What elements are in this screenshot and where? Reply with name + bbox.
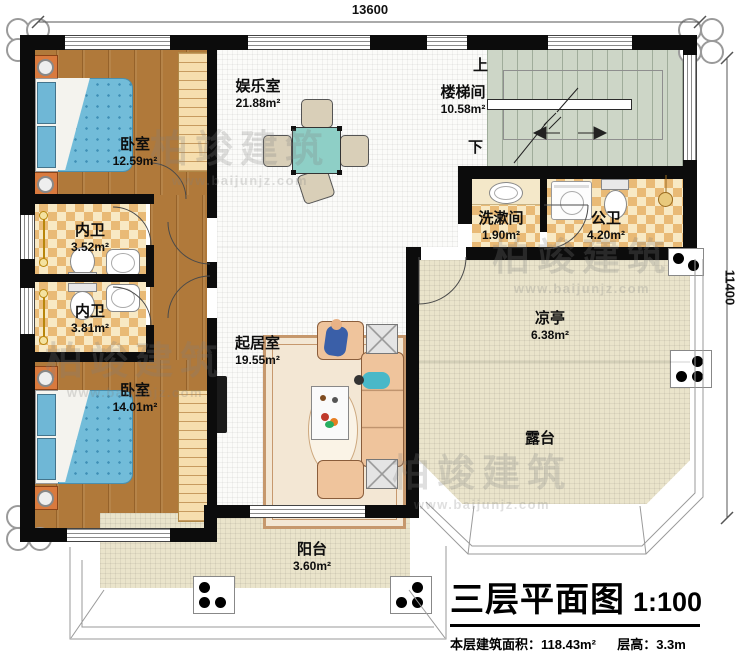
stairs-up-label: 上 bbox=[473, 54, 488, 75]
nightstand bbox=[33, 486, 58, 510]
wardrobe bbox=[178, 390, 209, 522]
person-figure bbox=[362, 372, 390, 389]
plan-scale: 1:100 bbox=[633, 587, 702, 617]
towel-rail bbox=[43, 294, 45, 338]
lamp-icon bbox=[37, 176, 54, 193]
room-label-public-bath: 公卫 4.20m² bbox=[574, 210, 638, 242]
room-area: 10.58m² bbox=[427, 102, 499, 116]
room-name: 卧室 bbox=[95, 136, 175, 154]
window bbox=[67, 528, 170, 542]
nightstand bbox=[33, 172, 58, 196]
room-name: 卧室 bbox=[95, 382, 175, 400]
column-marker bbox=[193, 576, 235, 614]
room-area: 3.52m² bbox=[60, 240, 120, 254]
bed-pillow bbox=[37, 82, 56, 124]
column-dot bbox=[692, 356, 703, 367]
table-corner bbox=[291, 126, 296, 131]
cup-decor bbox=[332, 397, 338, 403]
window bbox=[548, 35, 632, 50]
plan-title-row: 三层平面图1:100 bbox=[450, 572, 700, 621]
room-label-pavilion: 凉亭 6.38m² bbox=[515, 310, 585, 342]
room-name: 楼梯间 bbox=[427, 84, 499, 102]
sink-icon bbox=[489, 182, 523, 204]
towel-rail-end bbox=[39, 211, 48, 220]
plan-info: 本层建筑面积：118.43m² 层高：3.3m bbox=[450, 634, 700, 653]
bed-pillow bbox=[37, 126, 56, 168]
game-table bbox=[292, 127, 341, 174]
title-underline bbox=[450, 624, 700, 627]
wall bbox=[20, 352, 154, 362]
wall bbox=[207, 262, 217, 288]
bed-pillow bbox=[37, 394, 56, 436]
window bbox=[20, 288, 35, 334]
room-name: 阳台 bbox=[277, 541, 347, 559]
room-label-bedroom-bottom: 卧室 14.01m² bbox=[95, 382, 175, 414]
towel-rail-end bbox=[39, 258, 48, 267]
column-dot bbox=[199, 582, 210, 593]
room-area: 3.81m² bbox=[60, 321, 120, 335]
area-label: 本层建筑面积： bbox=[450, 637, 541, 652]
room-label-stairwell: 楼梯间 10.58m² bbox=[427, 84, 499, 116]
room-area: 6.38m² bbox=[515, 328, 585, 342]
room-label-living: 起居室 19.55m² bbox=[215, 335, 300, 367]
room-name: 内卫 bbox=[60, 303, 120, 321]
room-name: 公卫 bbox=[574, 210, 638, 228]
column-marker bbox=[670, 350, 712, 388]
leaf-decor bbox=[325, 421, 334, 428]
wall bbox=[20, 274, 154, 282]
room-label-bath-inner-1: 内卫 3.52m² bbox=[60, 222, 120, 254]
corridor-floor bbox=[150, 195, 207, 360]
doorway bbox=[421, 247, 466, 260]
window bbox=[427, 35, 467, 50]
wall bbox=[458, 166, 697, 179]
room-name: 内卫 bbox=[60, 222, 120, 240]
coffee-table bbox=[311, 386, 349, 440]
wall bbox=[20, 194, 154, 204]
room-area: 14.01m² bbox=[95, 400, 175, 414]
height-label: 层高： bbox=[617, 637, 656, 652]
toilet-tank bbox=[601, 179, 629, 190]
room-area: 1.90m² bbox=[465, 228, 537, 242]
column-dot bbox=[688, 260, 699, 271]
room-name: 娱乐室 bbox=[218, 78, 298, 96]
room-label-bath-inner-2: 内卫 3.81m² bbox=[60, 303, 120, 335]
plan-title: 三层平面图 bbox=[450, 581, 625, 619]
sink-basin bbox=[494, 186, 518, 200]
towel-rail-end bbox=[39, 336, 48, 345]
room-name: 露台 bbox=[505, 430, 575, 448]
room-area: 19.55m² bbox=[215, 353, 300, 367]
column-dot bbox=[412, 582, 423, 593]
lamp-icon bbox=[37, 490, 54, 507]
table-corner bbox=[337, 126, 342, 131]
wardrobe bbox=[178, 52, 209, 172]
bed-sheet bbox=[58, 78, 94, 170]
area-value: 118.43m² bbox=[541, 637, 596, 652]
hall-floor bbox=[217, 166, 458, 247]
table-corner bbox=[291, 170, 296, 175]
column-dot bbox=[199, 597, 210, 608]
person-head bbox=[354, 375, 364, 385]
wall bbox=[406, 260, 419, 518]
towel-rail bbox=[43, 216, 45, 260]
round-column bbox=[700, 40, 724, 64]
column-marker bbox=[668, 248, 704, 276]
column-dot bbox=[215, 597, 226, 608]
room-label-bedroom-top: 卧室 12.59m² bbox=[95, 136, 175, 168]
bed-pillow bbox=[37, 438, 56, 480]
nightstand bbox=[33, 55, 58, 79]
dimension-top: 13600 bbox=[330, 2, 410, 17]
person-head bbox=[331, 319, 342, 330]
room-name: 起居室 bbox=[215, 335, 300, 353]
sink-basin bbox=[111, 253, 135, 273]
room-name: 凉亭 bbox=[515, 310, 585, 328]
title-block: 三层平面图1:100 本层建筑面积：118.43m² 层高：3.3m bbox=[450, 572, 700, 653]
column-dot bbox=[673, 253, 684, 264]
wall bbox=[146, 245, 154, 287]
wall bbox=[207, 49, 217, 218]
room-label-balcony: 阳台 3.60m² bbox=[277, 541, 347, 573]
cup-decor bbox=[320, 395, 326, 401]
side-table bbox=[366, 459, 398, 489]
height-value: 3.3m bbox=[656, 637, 686, 652]
lamp-icon bbox=[37, 59, 54, 76]
table-corner bbox=[337, 170, 342, 175]
floor-plan-canvas: 卧室 12.59m² 娱乐室 21.88m² 楼梯间 10.58m² 内卫 3.… bbox=[0, 0, 750, 658]
room-label-entertainment: 娱乐室 21.88m² bbox=[218, 78, 298, 110]
room-area: 4.20m² bbox=[574, 228, 638, 242]
column-dot bbox=[396, 597, 407, 608]
chair bbox=[263, 135, 292, 167]
chair bbox=[301, 99, 333, 128]
dimension-right: 11400 bbox=[723, 258, 738, 318]
column-marker bbox=[390, 576, 432, 614]
stair-landing-rail bbox=[487, 99, 632, 110]
round-column bbox=[700, 18, 724, 42]
wall bbox=[540, 179, 547, 232]
column-dot bbox=[676, 371, 687, 382]
stairs-down-label: 下 bbox=[468, 136, 483, 157]
room-area: 12.59m² bbox=[95, 154, 175, 168]
towel-rail-end bbox=[39, 289, 48, 298]
armchair bbox=[317, 460, 364, 499]
column-dot bbox=[412, 597, 423, 608]
sofa-three-seat bbox=[361, 352, 404, 467]
room-name: 洗漱间 bbox=[465, 210, 537, 228]
room-label-washroom: 洗漱间 1.90m² bbox=[465, 210, 537, 242]
shower-head-icon bbox=[658, 192, 673, 207]
washer-panel bbox=[554, 185, 589, 188]
lamp-icon bbox=[37, 370, 54, 387]
window bbox=[20, 215, 35, 259]
window bbox=[65, 35, 170, 50]
bed-sheet bbox=[58, 390, 94, 482]
room-area: 21.88m² bbox=[218, 96, 298, 110]
chair bbox=[340, 135, 369, 167]
window bbox=[683, 55, 697, 160]
window bbox=[248, 35, 370, 50]
flower-decor bbox=[321, 413, 329, 421]
nightstand bbox=[33, 366, 58, 390]
wall bbox=[146, 325, 154, 362]
room-label-terrace: 露台 bbox=[505, 430, 575, 448]
window bbox=[250, 505, 365, 518]
room-area: 3.60m² bbox=[277, 559, 347, 573]
side-table bbox=[366, 324, 398, 354]
column-dot bbox=[692, 371, 703, 382]
